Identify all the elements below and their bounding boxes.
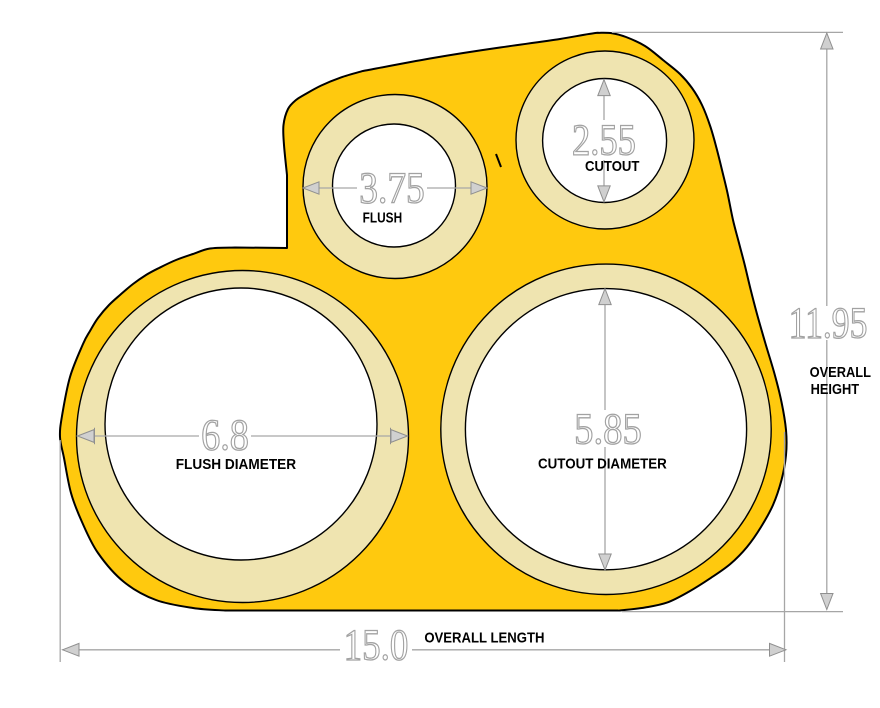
svg-text:15.0: 15.0 [344,621,409,670]
svg-text:OVERALL LENGTH: OVERALL LENGTH [424,629,544,646]
svg-text:FLUSH: FLUSH [363,209,402,226]
svg-text:CUTOUT DIAMETER: CUTOUT DIAMETER [538,456,667,473]
svg-text:6.8: 6.8 [201,410,249,459]
svg-text:OVERALL: OVERALL [810,363,872,380]
svg-text:FLUSH DIAMETER: FLUSH DIAMETER [176,457,297,474]
svg-text:HEIGHT: HEIGHT [811,380,860,397]
svg-text:CUTOUT: CUTOUT [585,157,640,174]
svg-text:5.85: 5.85 [574,404,642,453]
svg-text:11.95: 11.95 [789,298,868,347]
svg-text:3.75: 3.75 [359,164,424,212]
